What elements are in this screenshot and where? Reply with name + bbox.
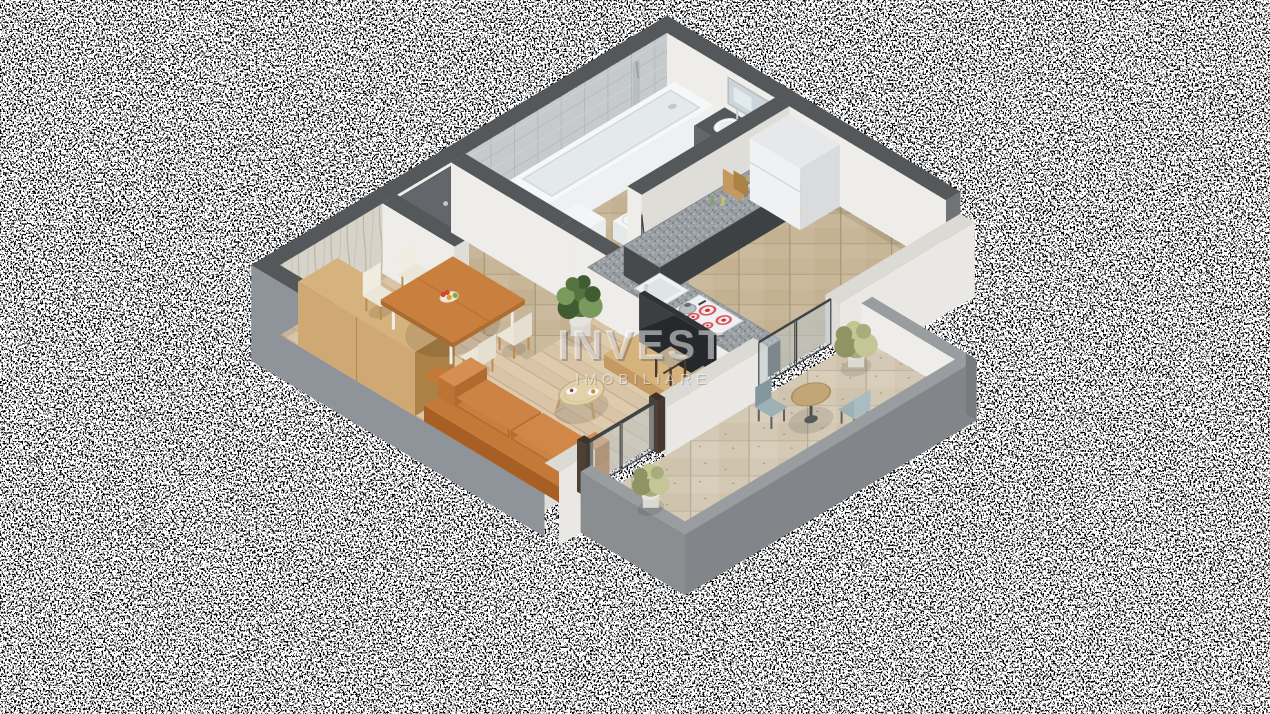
fruit	[453, 293, 458, 298]
food	[570, 389, 574, 393]
plant-foliage	[856, 324, 871, 339]
kitchen-faucet	[644, 284, 648, 288]
plant-foliage	[836, 326, 853, 343]
floorplan-render: INVEST INVEST IMOBILIARE IMOBILIARE	[0, 0, 1270, 714]
plant-foliage	[633, 468, 647, 482]
balcony-parapet-endcap	[966, 353, 977, 421]
croissant	[591, 389, 595, 393]
fruit	[447, 295, 452, 300]
glass-door-post	[658, 398, 665, 454]
floorplan-scene: INVEST INVEST IMOBILIARE IMOBILIARE	[0, 0, 1270, 714]
fruit	[445, 290, 450, 295]
plant-foliage	[651, 466, 664, 479]
plant-foliage	[585, 286, 601, 302]
watermark-title: INVEST	[557, 321, 727, 368]
entry-door-handle	[443, 201, 448, 206]
watermark-subtitle: IMOBILIARE	[575, 371, 711, 388]
plant-foliage	[566, 277, 580, 291]
